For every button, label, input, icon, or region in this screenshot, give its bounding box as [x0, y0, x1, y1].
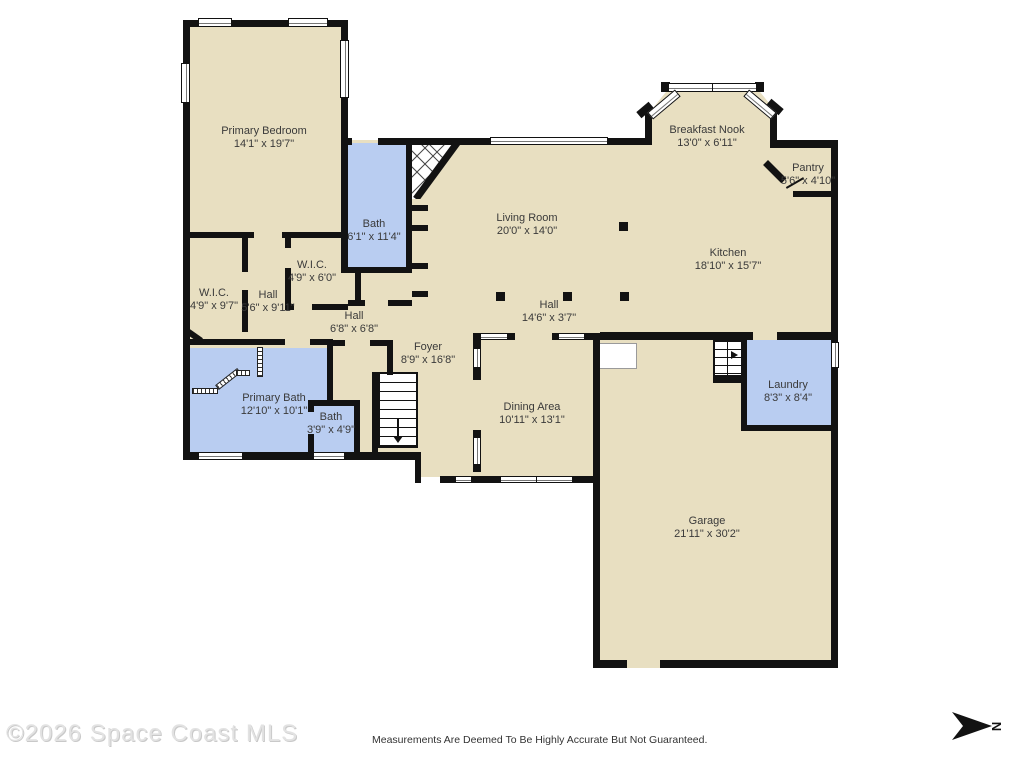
- window: [340, 40, 349, 98]
- room-label: Hall14'6" x 3'7": [522, 299, 576, 325]
- window: [831, 342, 839, 368]
- wall: [333, 340, 345, 346]
- window: [536, 476, 573, 483]
- wall: [242, 238, 248, 272]
- copyright-watermark: ©2026 Space Coast MLS: [6, 720, 298, 748]
- room-name: Pantry: [781, 162, 835, 175]
- room-dims: 10'11" x 13'1": [499, 414, 565, 427]
- wall: [282, 232, 345, 238]
- wall: [412, 291, 428, 297]
- room-label: Living Room20'0" x 14'0": [496, 212, 557, 238]
- wall: [308, 400, 360, 406]
- room-name: Primary Bath: [241, 392, 307, 405]
- room-dims: 6'8" x 6'8": [330, 323, 378, 336]
- room-name: Dining Area: [499, 401, 565, 414]
- room-label: Dining Area10'11" x 13'1": [499, 401, 565, 427]
- window-sliding-door: [490, 137, 608, 145]
- wall: [412, 205, 428, 211]
- room-label: Laundry8'3" x 8'4": [764, 379, 812, 405]
- room-label: W.I.C.4'9" x 6'0": [288, 259, 336, 285]
- room-label: Hall5'6" x 9'11": [241, 289, 294, 315]
- wall: [387, 340, 393, 375]
- wall: [243, 452, 313, 460]
- hatched-void: [410, 141, 464, 199]
- room-label: Foyer8'9" x 16'8": [401, 341, 455, 367]
- wall: [472, 476, 500, 483]
- window: [455, 476, 472, 483]
- room-name: Breakfast Nook: [669, 124, 744, 137]
- column: [496, 292, 505, 301]
- interior-window: [473, 348, 481, 368]
- interior-window: [473, 437, 481, 465]
- room-name: Primary Bedroom: [221, 125, 307, 138]
- room-label: Primary Bath12'10" x 10'1": [241, 392, 307, 418]
- room-floor-dining-south: [415, 460, 600, 477]
- room-name: Hall: [241, 289, 294, 302]
- room-label: Pantry5'6" x 4'10": [781, 162, 835, 188]
- wall: [355, 270, 361, 306]
- wall: [341, 20, 348, 42]
- north-label: N: [989, 722, 1004, 731]
- stairs-arrow-line: [397, 418, 399, 436]
- room-label: Primary Bedroom14'1" x 19'7": [221, 125, 307, 151]
- room-dims: 14'6" x 3'7": [522, 312, 576, 325]
- window: [198, 452, 243, 460]
- wall: [793, 191, 831, 197]
- north-arrow: N: [948, 710, 1014, 753]
- disclaimer-text: Measurements Are Deemed To Be Highly Acc…: [372, 734, 707, 746]
- wall: [593, 340, 600, 668]
- wall: [378, 138, 490, 145]
- wall: [660, 660, 838, 668]
- wall: [285, 238, 291, 248]
- room-name: Bath: [307, 411, 355, 424]
- room-label: W.I.C.4'9" x 9'7": [190, 287, 238, 313]
- wall: [440, 476, 455, 483]
- interior-window: [558, 333, 585, 340]
- room-dims: 5'6" x 9'11": [241, 302, 294, 315]
- wall: [593, 660, 627, 668]
- wall: [608, 138, 649, 145]
- room-floor-bath: [348, 143, 406, 267]
- window: [181, 63, 190, 103]
- room-label: Bath3'9" x 4'9": [307, 411, 355, 437]
- room-name: Foyer: [401, 341, 455, 354]
- room-dims: 20'0" x 14'0": [496, 225, 557, 238]
- garage-closet: [599, 343, 637, 369]
- room-dims: 21'11" x 30'2": [674, 528, 740, 541]
- wall: [341, 267, 412, 273]
- wall: [388, 300, 412, 306]
- shower-glass: [236, 370, 250, 376]
- wall: [345, 452, 421, 460]
- room-dims: 13'0" x 6'11": [669, 137, 744, 150]
- wall: [770, 140, 838, 148]
- room-label: Kitchen18'10" x 15'7": [695, 247, 761, 273]
- wall: [186, 339, 285, 345]
- room-name: W.I.C.: [288, 259, 336, 272]
- room-dims: 6'1" x 11'4": [347, 231, 400, 244]
- room-dims: 4'9" x 6'0": [288, 272, 336, 285]
- room-label: Hall6'8" x 6'8": [330, 310, 378, 336]
- room-label: Garage21'11" x 30'2": [674, 515, 740, 541]
- room-name: Bath: [347, 218, 400, 231]
- column: [620, 292, 629, 301]
- room-name: Garage: [674, 515, 740, 528]
- column: [619, 222, 628, 231]
- room-name: Hall: [330, 310, 378, 323]
- room-name: Living Room: [496, 212, 557, 225]
- wall: [341, 96, 348, 273]
- room-dims: 14'1" x 19'7": [221, 138, 307, 151]
- wall: [412, 263, 428, 269]
- wall: [372, 372, 378, 460]
- window: [500, 476, 537, 483]
- room-name: Hall: [522, 299, 576, 312]
- room-dims: 18'10" x 15'7": [695, 260, 761, 273]
- interior-window: [480, 333, 508, 340]
- stairs-attic-arrow-icon: [731, 351, 738, 359]
- room-dims: 8'3" x 8'4": [764, 392, 812, 405]
- room-dims: 8'9" x 16'8": [401, 354, 455, 367]
- room-name: Kitchen: [695, 247, 761, 260]
- window: [288, 18, 328, 27]
- wall: [412, 225, 428, 231]
- wall: [777, 332, 838, 340]
- shower-glass: [192, 388, 218, 394]
- wall: [327, 345, 333, 403]
- wall: [600, 332, 753, 340]
- wall: [713, 377, 743, 383]
- wall: [186, 452, 198, 460]
- room-label: Bath6'1" x 11'4": [347, 218, 400, 244]
- wall: [415, 452, 421, 483]
- room-dims: 5'6" x 4'10": [781, 175, 835, 188]
- room-label: Breakfast Nook13'0" x 6'11": [669, 124, 744, 150]
- stairs-attic-rail: [727, 341, 728, 376]
- wall: [831, 140, 838, 668]
- window: [198, 18, 232, 27]
- floor-plan: Primary Bedroom14'1" x 19'7" Bath6'1" x …: [0, 0, 1024, 768]
- room-dims: 12'10" x 10'1": [241, 405, 307, 418]
- room-name: Laundry: [764, 379, 812, 392]
- stairs-arrow-down-icon: [393, 436, 403, 443]
- stairs-attic: [713, 340, 743, 377]
- window: [313, 452, 345, 460]
- shower-glass: [257, 347, 263, 377]
- room-dims: 3'9" x 4'9": [307, 424, 355, 437]
- wall: [741, 425, 831, 431]
- room-name: W.I.C.: [190, 287, 238, 300]
- wall: [341, 138, 352, 145]
- room-dims: 4'9" x 9'7": [190, 300, 238, 313]
